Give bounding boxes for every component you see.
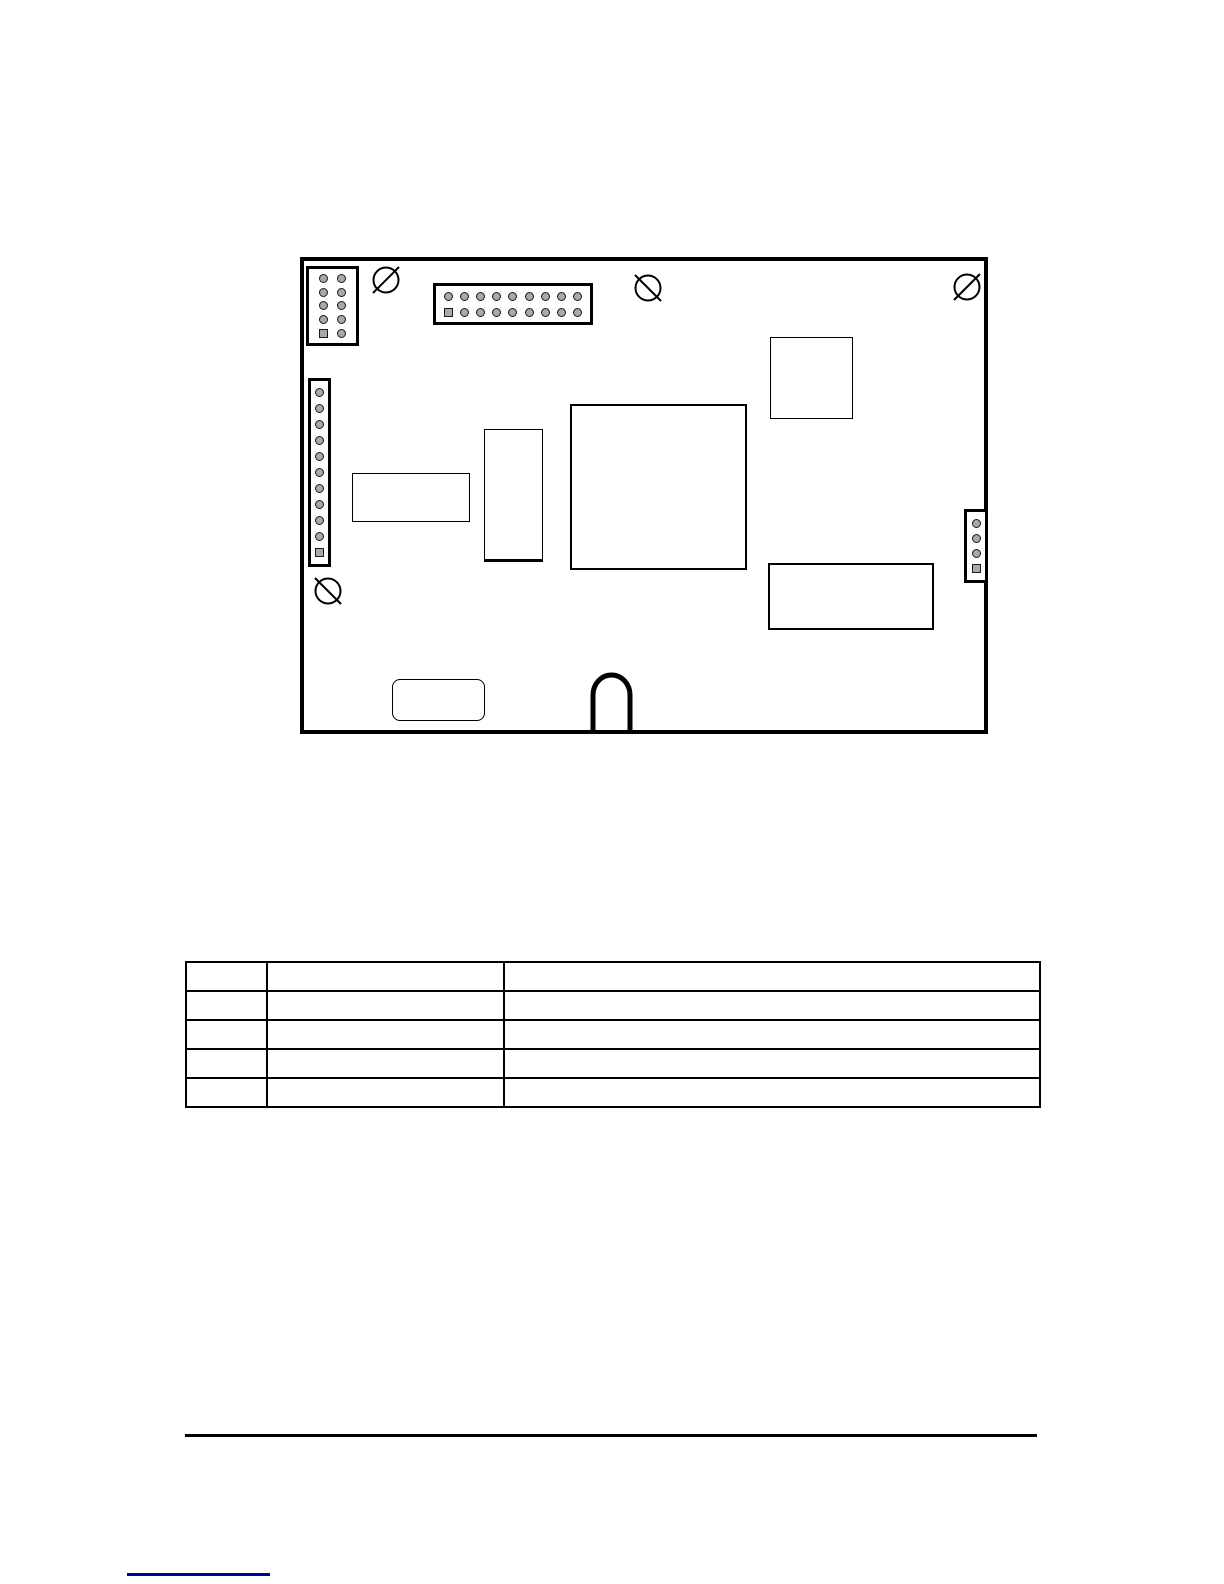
table-cell [267,991,504,1020]
pin [444,292,453,301]
pin1-square [319,329,328,338]
pin [557,292,566,301]
cable-notch-icon [589,671,634,730]
pin [319,274,328,283]
pin [315,484,324,493]
pin [337,301,346,310]
lower-right-module [768,563,934,630]
pin [315,436,324,445]
pin [476,308,485,317]
pin [319,288,328,297]
pin [508,308,517,317]
pin [315,420,324,429]
pin-header-2x5 [306,266,359,346]
pin [315,468,324,477]
small-ic-top-right [770,337,853,419]
pin [573,308,582,317]
pin [972,519,981,528]
pin [337,329,346,338]
pin [972,534,981,543]
pin [525,308,534,317]
pin [315,500,324,509]
table-header-row [186,962,1040,991]
table-row [186,991,1040,1020]
pin [573,292,582,301]
pin [337,288,346,297]
table-cell [186,1078,267,1107]
pin [337,274,346,283]
pin [476,292,485,301]
pin [315,532,324,541]
table-row [186,1078,1040,1107]
spec-table [185,961,1041,1108]
pin [541,292,550,301]
footer-link-underline[interactable] [127,1573,270,1576]
pin-header-1x4 [964,509,988,583]
table-header-cell [267,962,504,991]
footer-rule [185,1434,1037,1437]
pin1-square [315,548,324,557]
mounting-hole-icon [366,260,406,300]
table-row [186,1020,1040,1049]
table-cell [186,1049,267,1078]
pin [315,388,324,397]
table-header-cell [504,962,1040,991]
pin [525,292,534,301]
table-cell [504,1049,1040,1078]
table-cell [504,1078,1040,1107]
pin [315,404,324,413]
pin [319,301,328,310]
mounting-hole-icon [947,267,987,307]
pin [972,549,981,558]
pin [337,315,346,324]
table-cell [504,1020,1040,1049]
pin [492,292,501,301]
pin [460,308,469,317]
mounting-hole-icon [308,571,348,611]
table-cell [186,991,267,1020]
table-cell [504,991,1040,1020]
pin [492,308,501,317]
large-ic-center [570,404,747,570]
pin [315,452,324,461]
table-cell [267,1078,504,1107]
table-header-cell [186,962,267,991]
pcb-board-outline [300,257,988,734]
pin [557,308,566,317]
rounded-module-bottom [392,679,485,721]
table-cell [267,1049,504,1078]
pin1-square [972,564,981,573]
vertical-module [484,429,543,562]
horizontal-module [352,473,470,522]
pin [315,516,324,525]
pin [508,292,517,301]
table-row [186,1049,1040,1078]
table-cell [267,1020,504,1049]
table-cell [186,1020,267,1049]
pin-header-2x9 [433,283,593,325]
mounting-hole-icon [628,268,668,308]
pin1-square [444,308,453,317]
pin-header-1x11 [308,378,331,567]
pin [319,315,328,324]
pin [541,308,550,317]
pin [460,292,469,301]
